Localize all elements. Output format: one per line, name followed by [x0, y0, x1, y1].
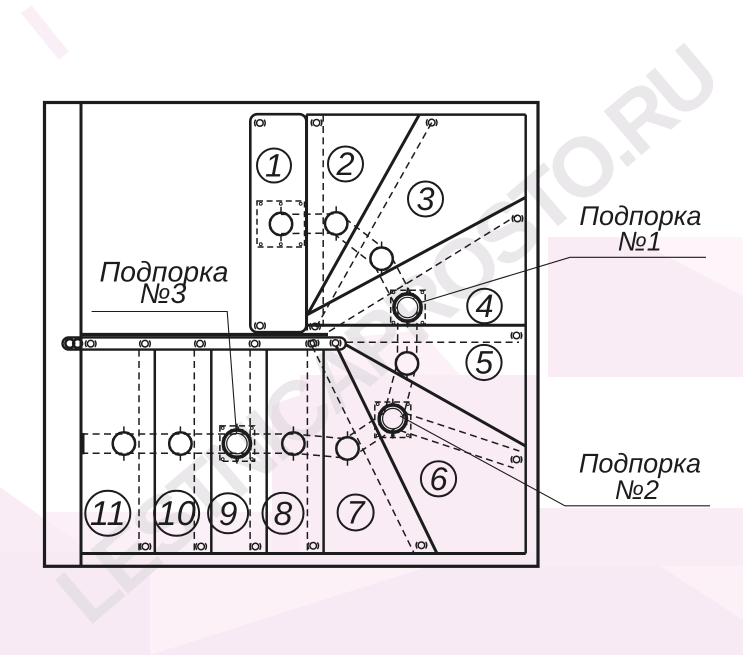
svg-text:Подпорка: Подпорка — [579, 449, 701, 479]
svg-text:6: 6 — [429, 461, 448, 497]
svg-text:9: 9 — [219, 496, 238, 533]
svg-text:№1: №1 — [618, 227, 662, 257]
svg-text:5: 5 — [475, 345, 494, 381]
svg-text:4: 4 — [475, 288, 493, 324]
svg-text:10: 10 — [157, 495, 195, 533]
svg-text:1: 1 — [265, 148, 283, 184]
svg-text:2: 2 — [335, 146, 354, 182]
svg-text:№2: №2 — [615, 475, 659, 505]
svg-text:3: 3 — [416, 181, 434, 217]
svg-text:7: 7 — [347, 495, 367, 531]
svg-text:№3: №3 — [140, 278, 187, 310]
svg-text:8: 8 — [274, 496, 293, 533]
svg-text:11: 11 — [90, 495, 126, 533]
